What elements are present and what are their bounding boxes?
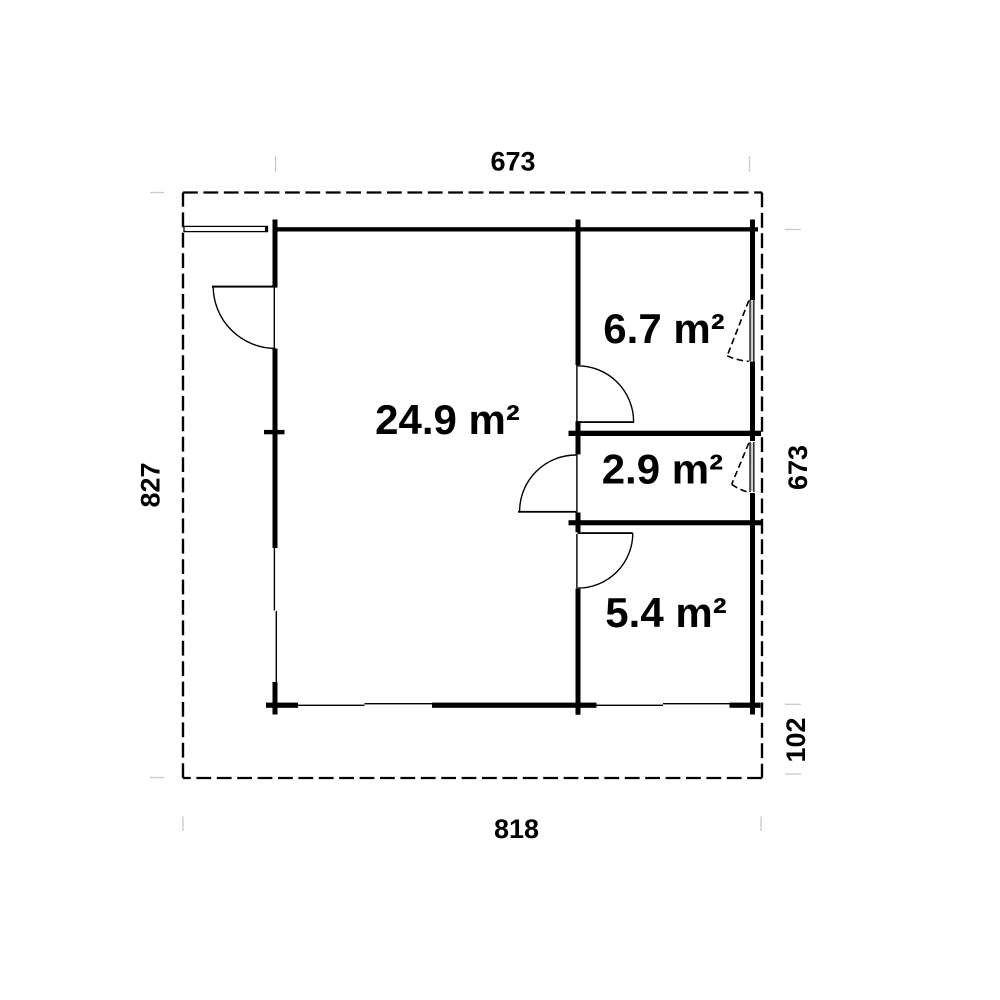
svg-text:827: 827 <box>136 462 166 507</box>
svg-text:5.4 m²: 5.4 m² <box>605 589 726 636</box>
svg-text:818: 818 <box>494 814 539 844</box>
svg-text:2.9 m²: 2.9 m² <box>602 446 723 493</box>
svg-text:24.9 m²: 24.9 m² <box>375 396 520 443</box>
svg-text:6.7 m²: 6.7 m² <box>603 305 724 352</box>
svg-text:673: 673 <box>783 445 813 490</box>
svg-text:102: 102 <box>781 717 811 762</box>
svg-text:673: 673 <box>490 147 535 177</box>
